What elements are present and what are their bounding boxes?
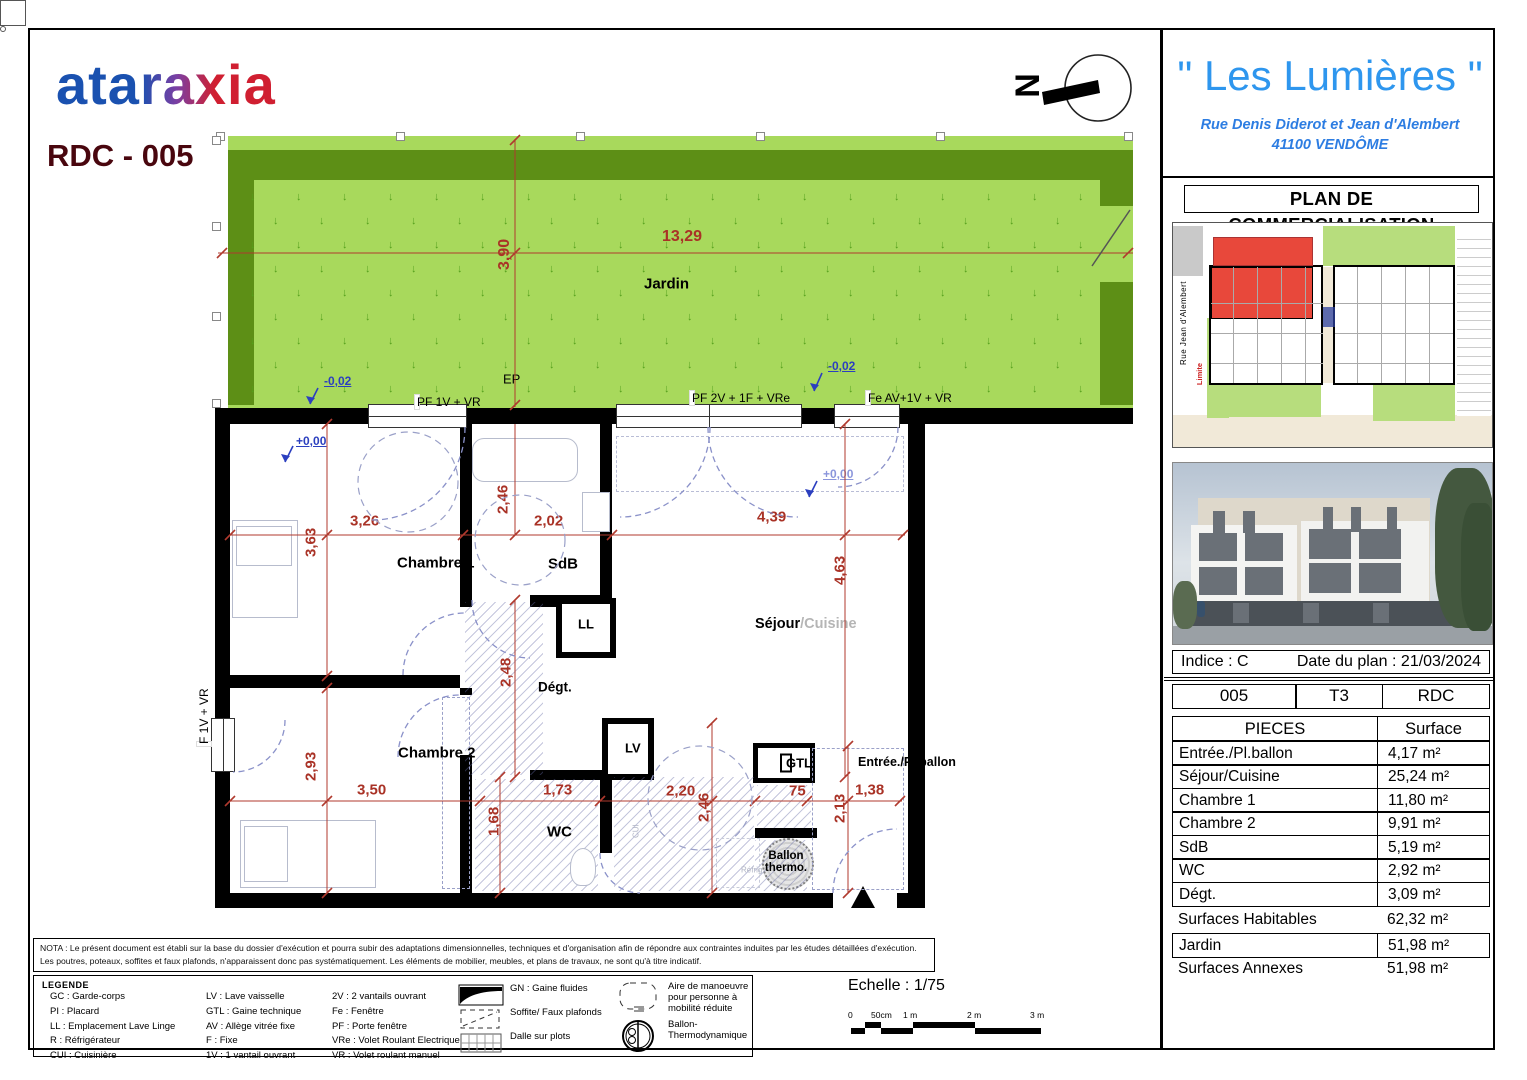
garden-hedge — [1100, 282, 1133, 405]
grass-mark: ↓ — [480, 288, 486, 299]
legend-column-2: LV : Lave vaisselle GTL : Gaine techniqu… — [206, 990, 301, 1064]
grass-mark: ↓ — [917, 360, 923, 371]
cell-surface: 9,91 m² — [1378, 812, 1489, 835]
grass-mark: ↓ — [618, 336, 624, 347]
grass-mark: ↓ — [457, 264, 463, 275]
wall — [755, 828, 817, 838]
fence-post — [756, 132, 765, 141]
scale-label: Echelle : 1/75 — [848, 977, 945, 995]
grass-mark: ↓ — [802, 240, 808, 251]
grass-mark: ↓ — [779, 264, 785, 275]
wall — [800, 408, 836, 424]
photo-window — [1199, 533, 1237, 561]
photo-bush — [1173, 581, 1197, 629]
photo-window — [1245, 533, 1283, 561]
window-label-text: PF 1V + VR — [414, 394, 420, 410]
grass-mark: ↓ — [779, 360, 785, 371]
hatched-zone — [465, 602, 543, 775]
grass-mark: ↓ — [526, 192, 532, 203]
grass-mark: ↓ — [1078, 288, 1084, 299]
building-partition-line — [1211, 333, 1323, 334]
grass-mark: ↓ — [273, 216, 279, 227]
cell-surface: 51,98 m² — [1377, 957, 1490, 982]
window-symbol — [834, 404, 900, 428]
grass-mark: ↓ — [618, 384, 624, 395]
grass-mark: ↓ — [296, 384, 302, 395]
site-zone — [1323, 226, 1455, 266]
grass-mark: ↓ — [388, 336, 394, 347]
grass-mark: ↓ — [871, 360, 877, 371]
grass-mark: ↓ — [296, 288, 302, 299]
grass-mark: ↓ — [342, 240, 348, 251]
stairwell — [1323, 307, 1335, 327]
building-partition-line — [1335, 303, 1453, 304]
fence-post — [212, 136, 221, 145]
scale-tick-label: 2 m — [967, 1010, 981, 1020]
grass-mark: ↓ — [986, 384, 992, 395]
grass-mark: ↓ — [480, 336, 486, 347]
grass-mark: ↓ — [572, 192, 578, 203]
grass-mark: ↓ — [664, 192, 670, 203]
grass-mark: ↓ — [802, 192, 808, 203]
grass-mark: ↓ — [802, 336, 808, 347]
grass-mark: ↓ — [365, 312, 371, 323]
grass-mark: ↓ — [250, 384, 256, 395]
wall — [465, 408, 618, 424]
window-label-text: Fe AV+1V + VR — [865, 390, 871, 406]
building-partition-line — [1281, 267, 1282, 383]
aire-manoeuvre-label: Aire de manoeuvre pour personne à mobili… — [668, 982, 748, 1015]
dalle-sur-plots-label: Dalle sur plots — [510, 1032, 570, 1043]
site-location-plan: Rue Jean d'Alembert Limite Limite Limite… — [1172, 222, 1493, 448]
cell-piece: SdB — [1173, 836, 1378, 859]
grass-mark: ↓ — [572, 288, 578, 299]
scale-tick-label: 1 m — [903, 1010, 917, 1020]
street-label-left: Rue Jean d'Alembert — [1179, 281, 1188, 365]
scale-bar-segment — [865, 1022, 881, 1028]
highlighted-unit — [1211, 267, 1313, 319]
grass-mark: ↓ — [1032, 288, 1038, 299]
grass-mark: ↓ — [687, 360, 693, 371]
grass-mark: ↓ — [503, 216, 509, 227]
table-row: Chambre 29,91 m² — [1172, 811, 1490, 836]
entree-dashed-outline — [812, 748, 904, 890]
cell-piece: Chambre 1 — [1173, 789, 1378, 812]
building-partition-line — [1335, 333, 1453, 334]
site-zone — [1173, 226, 1203, 276]
cell-surface: 3,09 m² — [1378, 883, 1489, 906]
cell-surface: 4,17 m² — [1378, 742, 1489, 765]
ballon-thermodynamique-icon — [616, 1018, 662, 1059]
grass-mark: ↓ — [710, 336, 716, 347]
double-rule — [1164, 677, 1494, 681]
cell-surface: Surface — [1378, 717, 1489, 740]
cell-piece: Surfaces Habitables — [1172, 908, 1377, 933]
legend-column-3: 2V : 2 vantails ouvrant Fe : Fenêtre PF … — [332, 990, 460, 1064]
grass-mark: ↓ — [365, 264, 371, 275]
nota-text: NOTA : Le présent document est établi su… — [33, 938, 935, 972]
garden-hedge — [1100, 180, 1133, 206]
grass-mark: ↓ — [687, 264, 693, 275]
grass-mark: ↓ — [848, 384, 854, 395]
grass-mark: ↓ — [572, 336, 578, 347]
grass-mark: ↓ — [687, 312, 693, 323]
grass-mark: ↓ — [273, 312, 279, 323]
grass-mark: ↓ — [641, 264, 647, 275]
grass-mark: ↓ — [595, 360, 601, 371]
table-row: Dégt.3,09 m² — [1172, 882, 1490, 907]
grass-mark: ↓ — [894, 240, 900, 251]
grass-mark: ↓ — [710, 288, 716, 299]
scale-bar-segment — [881, 1028, 913, 1034]
grass-mark: ↓ — [457, 360, 463, 371]
building-partition-line — [1405, 267, 1406, 383]
window-label-text: F 1V + VR — [196, 741, 212, 747]
grass-mark: ↓ — [733, 216, 739, 227]
legend: LEGENDE GC : Garde-corps PI : Placard LL… — [33, 975, 753, 1057]
room-label-text: GTL — [780, 754, 792, 773]
grass-mark: ↓ — [1032, 336, 1038, 347]
building-partition-line — [1381, 267, 1382, 383]
highlighted-unit-garden — [1213, 237, 1313, 266]
cell-piece: Surfaces Annexes — [1172, 957, 1377, 982]
grass-mark: ↓ — [273, 264, 279, 275]
fence-post — [576, 132, 585, 141]
building-partition-line — [1429, 267, 1430, 383]
grass-mark: ↓ — [411, 264, 417, 275]
cell-piece: Dégt. — [1173, 883, 1378, 906]
scale-bar-segment — [851, 1028, 865, 1034]
cell-surface: 25,24 m² — [1378, 765, 1489, 788]
grass-mark: ↓ — [388, 288, 394, 299]
grass-mark: ↓ — [917, 312, 923, 323]
floor-plan: ↓↓↓↓↓↓↓↓↓↓↓↓↓↓↓↓↓↓↓↓↓↓↓↓↓↓↓↓↓↓↓↓↓↓↓↓↓↓↓↓… — [0, 0, 1160, 1080]
cell-piece: WC — [1173, 859, 1378, 882]
dalle-sur-plots-icon — [458, 1030, 504, 1061]
grass-mark: ↓ — [296, 192, 302, 203]
ep-drain-box — [0, 0, 26, 26]
rule — [1161, 176, 1495, 178]
fence-post — [396, 132, 405, 141]
grass-mark: ↓ — [1078, 240, 1084, 251]
grass-mark: ↓ — [1078, 384, 1084, 395]
grass-mark: ↓ — [250, 192, 256, 203]
wall — [215, 772, 230, 908]
table-header-row: PIECESSurface — [1172, 716, 1490, 741]
unit-type: T3 — [1296, 684, 1383, 709]
wall — [215, 408, 230, 718]
indice-value: Indice : C — [1181, 653, 1249, 671]
table-row: Chambre 111,80 m² — [1172, 788, 1490, 813]
grass-mark: ↓ — [549, 216, 555, 227]
grass-mark: ↓ — [779, 312, 785, 323]
grass-mark: ↓ — [549, 360, 555, 371]
photo-tree — [1461, 503, 1493, 631]
scale-bar-segment — [913, 1022, 975, 1028]
grass-mark: ↓ — [342, 288, 348, 299]
toilet — [570, 848, 596, 886]
photo-window — [1373, 603, 1389, 623]
table-row: Séjour/Cuisine25,24 m² — [1172, 764, 1490, 789]
grass-mark: ↓ — [411, 312, 417, 323]
grass-mark: ↓ — [802, 384, 808, 395]
photo-building-mass — [1173, 626, 1493, 645]
grass-mark: ↓ — [549, 264, 555, 275]
project-title: " Les Lumières " — [1166, 52, 1494, 100]
grass-mark: ↓ — [273, 360, 279, 371]
grass-mark: ↓ — [411, 216, 417, 227]
grass-mark: ↓ — [963, 216, 969, 227]
photo-window — [1309, 529, 1351, 559]
grass-mark: ↓ — [894, 288, 900, 299]
table-row: Jardin51,98 m² — [1172, 933, 1490, 958]
wall — [215, 893, 833, 908]
grass-mark: ↓ — [710, 240, 716, 251]
grass-mark: ↓ — [848, 192, 854, 203]
grass-mark: ↓ — [871, 264, 877, 275]
grass-mark: ↓ — [1055, 360, 1061, 371]
photo-window — [1309, 563, 1351, 593]
garden-hedge — [228, 150, 1133, 180]
room-label-text: Ballon thermo. — [760, 850, 812, 874]
grass-mark: ↓ — [319, 216, 325, 227]
cell-piece: Jardin — [1173, 934, 1378, 957]
grass-mark: ↓ — [641, 312, 647, 323]
sejour-label: Séjour — [755, 616, 800, 632]
photo-window — [1359, 563, 1401, 593]
ep-drain-circle — [0, 26, 6, 32]
grass-mark: ↓ — [1032, 384, 1038, 395]
building-render-photo — [1172, 462, 1493, 645]
building-partition-line — [1357, 267, 1358, 383]
grass-mark: ↓ — [756, 288, 762, 299]
grass-mark: ↓ — [1009, 264, 1015, 275]
grass-mark: ↓ — [595, 216, 601, 227]
table-row: Entrée./Pl.ballon4,17 m² — [1172, 741, 1490, 766]
grass-mark: ↓ — [1032, 192, 1038, 203]
grass-mark: ↓ — [388, 192, 394, 203]
grass-mark: ↓ — [434, 336, 440, 347]
table-row: Surfaces Habitables62,32 m² — [1172, 908, 1490, 933]
grass-mark: ↓ — [641, 360, 647, 371]
grass-mark: ↓ — [733, 312, 739, 323]
grass-mark: ↓ — [779, 216, 785, 227]
legend-title: LEGENDE — [42, 980, 89, 990]
cell-surface: 2,92 m² — [1378, 859, 1489, 882]
grass-mark: ↓ — [618, 288, 624, 299]
grass-mark: ↓ — [871, 312, 877, 323]
grass-mark: ↓ — [664, 336, 670, 347]
wall — [600, 777, 612, 853]
grass-mark: ↓ — [986, 288, 992, 299]
grass-mark: ↓ — [319, 312, 325, 323]
grass-mark: ↓ — [319, 360, 325, 371]
grass-mark: ↓ — [457, 312, 463, 323]
grass-mark: ↓ — [319, 264, 325, 275]
grass-mark: ↓ — [917, 264, 923, 275]
meta-row: Indice : C Date du plan : 21/03/2024 — [1172, 650, 1490, 674]
cell-piece: Chambre 2 — [1173, 812, 1378, 835]
doc-title: PLAN DE COMMERCIALISATION — [1184, 185, 1479, 213]
limite-label-left: Limite — [1195, 363, 1204, 385]
grass-mark: ↓ — [940, 288, 946, 299]
photo-window — [1359, 529, 1401, 559]
grass-mark: ↓ — [526, 384, 532, 395]
grass-mark: ↓ — [1009, 312, 1015, 323]
grass-mark: ↓ — [250, 240, 256, 251]
cell-surface: 51,98 m² — [1378, 934, 1489, 957]
photo-window — [1303, 603, 1319, 623]
fence-post — [212, 312, 221, 321]
grass-mark: ↓ — [480, 384, 486, 395]
wall — [898, 408, 1133, 424]
wall — [908, 424, 925, 908]
grass-mark: ↓ — [572, 240, 578, 251]
grass-mark: ↓ — [1009, 216, 1015, 227]
photo-window — [1213, 511, 1225, 533]
grass-mark: ↓ — [480, 240, 486, 251]
grass-mark: ↓ — [434, 384, 440, 395]
grass-mark: ↓ — [618, 240, 624, 251]
building-east-wing — [1333, 265, 1455, 385]
grass-mark: ↓ — [1055, 264, 1061, 275]
grass-mark: ↓ — [388, 240, 394, 251]
building-partition-line — [1335, 363, 1453, 364]
fence-post — [1124, 132, 1133, 141]
photo-window — [1243, 511, 1255, 533]
grass-mark: ↓ — [572, 384, 578, 395]
fence-post — [936, 132, 945, 141]
grass-mark: ↓ — [825, 264, 831, 275]
grass-mark: ↓ — [756, 336, 762, 347]
grass-mark: ↓ — [250, 288, 256, 299]
project-address: Rue Denis Diderot et Jean d'Alembert 411… — [1166, 116, 1494, 155]
grass-mark: ↓ — [1078, 336, 1084, 347]
nota-line-1: NOTA : Le présent document est établi su… — [40, 942, 928, 955]
building-partition-line — [1211, 363, 1323, 364]
grass-mark: ↓ — [250, 336, 256, 347]
legend-column-1: GC : Garde-corps PI : Placard LL : Empla… — [50, 990, 175, 1064]
grass-mark: ↓ — [388, 384, 394, 395]
grass-mark: ↓ — [503, 312, 509, 323]
aire-manoeuvre-icon — [616, 980, 662, 1019]
grass-mark: ↓ — [1009, 360, 1015, 371]
grass-mark: ↓ — [411, 360, 417, 371]
grass-mark: ↓ — [940, 192, 946, 203]
grass-mark: ↓ — [526, 240, 532, 251]
window-label-text: PF 2V + 1F + VRe — [689, 390, 695, 406]
grass-mark: ↓ — [618, 192, 624, 203]
table-row: Surfaces Annexes51,98 m² — [1172, 957, 1490, 982]
grass-mark: ↓ — [1032, 240, 1038, 251]
grass-mark: ↓ — [365, 216, 371, 227]
wall — [230, 675, 460, 688]
photo-cyclist — [1197, 601, 1205, 617]
ballon-thermodynamique-label: Ballon- Thermodynamique — [668, 1020, 747, 1042]
grass-mark: ↓ — [756, 192, 762, 203]
grass-mark: ↓ — [1055, 216, 1061, 227]
scale-tick-label: 0 — [848, 1010, 853, 1020]
address-line-2: 41100 VENDÔME — [1166, 136, 1494, 156]
address-line-1: Rue Denis Diderot et Jean d'Alembert — [1166, 116, 1494, 136]
grass-mark: ↓ — [802, 288, 808, 299]
scale-tick-label: 50cm — [871, 1010, 892, 1020]
grass-mark: ↓ — [963, 312, 969, 323]
grass-mark: ↓ — [986, 192, 992, 203]
unit-floor: RDC — [1382, 684, 1490, 709]
grass-mark: ↓ — [825, 312, 831, 323]
grass-mark: ↓ — [963, 360, 969, 371]
building-partition-line — [1211, 303, 1323, 304]
grass-mark: ↓ — [365, 360, 371, 371]
grass-mark: ↓ — [342, 192, 348, 203]
grass-mark: ↓ — [480, 192, 486, 203]
cell-surface: 11,80 m² — [1378, 789, 1489, 812]
grass-mark: ↓ — [595, 264, 601, 275]
photo-window — [1245, 567, 1283, 595]
table-row: SdB5,19 m² — [1172, 835, 1490, 860]
fence-post — [212, 399, 221, 408]
pillow-chambre2 — [244, 826, 288, 882]
placard-dashed-outline — [442, 697, 470, 889]
grass-mark: ↓ — [986, 336, 992, 347]
grass-mark: ↓ — [848, 288, 854, 299]
table-row: WC2,92 m² — [1172, 858, 1490, 883]
scale-tick-label: 3 m — [1030, 1010, 1044, 1020]
grass-mark: ↓ — [296, 240, 302, 251]
grass-mark: ↓ — [296, 336, 302, 347]
grass-mark: ↓ — [848, 240, 854, 251]
grass-mark: ↓ — [871, 216, 877, 227]
building-partition-line — [1305, 267, 1306, 383]
parking-strips — [1457, 231, 1491, 416]
grass-mark: ↓ — [756, 240, 762, 251]
building-partition-line — [1257, 267, 1258, 383]
cell-piece: PIECES — [1173, 717, 1378, 740]
grass-mark: ↓ — [434, 192, 440, 203]
window-symbol — [211, 718, 235, 772]
grass-mark: ↓ — [641, 216, 647, 227]
grass-mark: ↓ — [595, 312, 601, 323]
grass-mark: ↓ — [894, 336, 900, 347]
grass-mark: ↓ — [986, 240, 992, 251]
cell-surface: 5,19 m² — [1378, 836, 1489, 859]
nota-line-2: Les poutres, poteaux, soffites et faux p… — [40, 955, 928, 968]
grass-mark: ↓ — [342, 336, 348, 347]
photo-window — [1233, 603, 1249, 623]
wall — [215, 408, 370, 424]
grass-mark: ↓ — [825, 216, 831, 227]
grass-mark: ↓ — [963, 264, 969, 275]
grass-mark: ↓ — [917, 216, 923, 227]
wall — [460, 424, 472, 600]
cell-surface: 62,32 m² — [1377, 908, 1490, 933]
cell-piece: Entrée./Pl.ballon — [1173, 742, 1378, 765]
photo-window — [1199, 567, 1237, 595]
bathtub — [472, 438, 578, 482]
grass-mark: ↓ — [1078, 192, 1084, 203]
grass-mark: ↓ — [549, 312, 555, 323]
grass-mark: ↓ — [457, 216, 463, 227]
grass-mark: ↓ — [526, 288, 532, 299]
scale-bar-segment — [975, 1028, 1041, 1034]
grass-mark: ↓ — [434, 288, 440, 299]
gaine-fluides-label: GN : Gaine fluides — [510, 984, 588, 995]
soffite-dashed-outline — [616, 436, 904, 492]
window-symbol — [616, 404, 802, 428]
plan-de-commercialisation-page: ataraxia RDC - 005 N ↓↓↓↓↓↓↓↓↓↓↓↓↓↓↓↓↓↓↓… — [0, 0, 1527, 1080]
grass-mark: ↓ — [733, 264, 739, 275]
